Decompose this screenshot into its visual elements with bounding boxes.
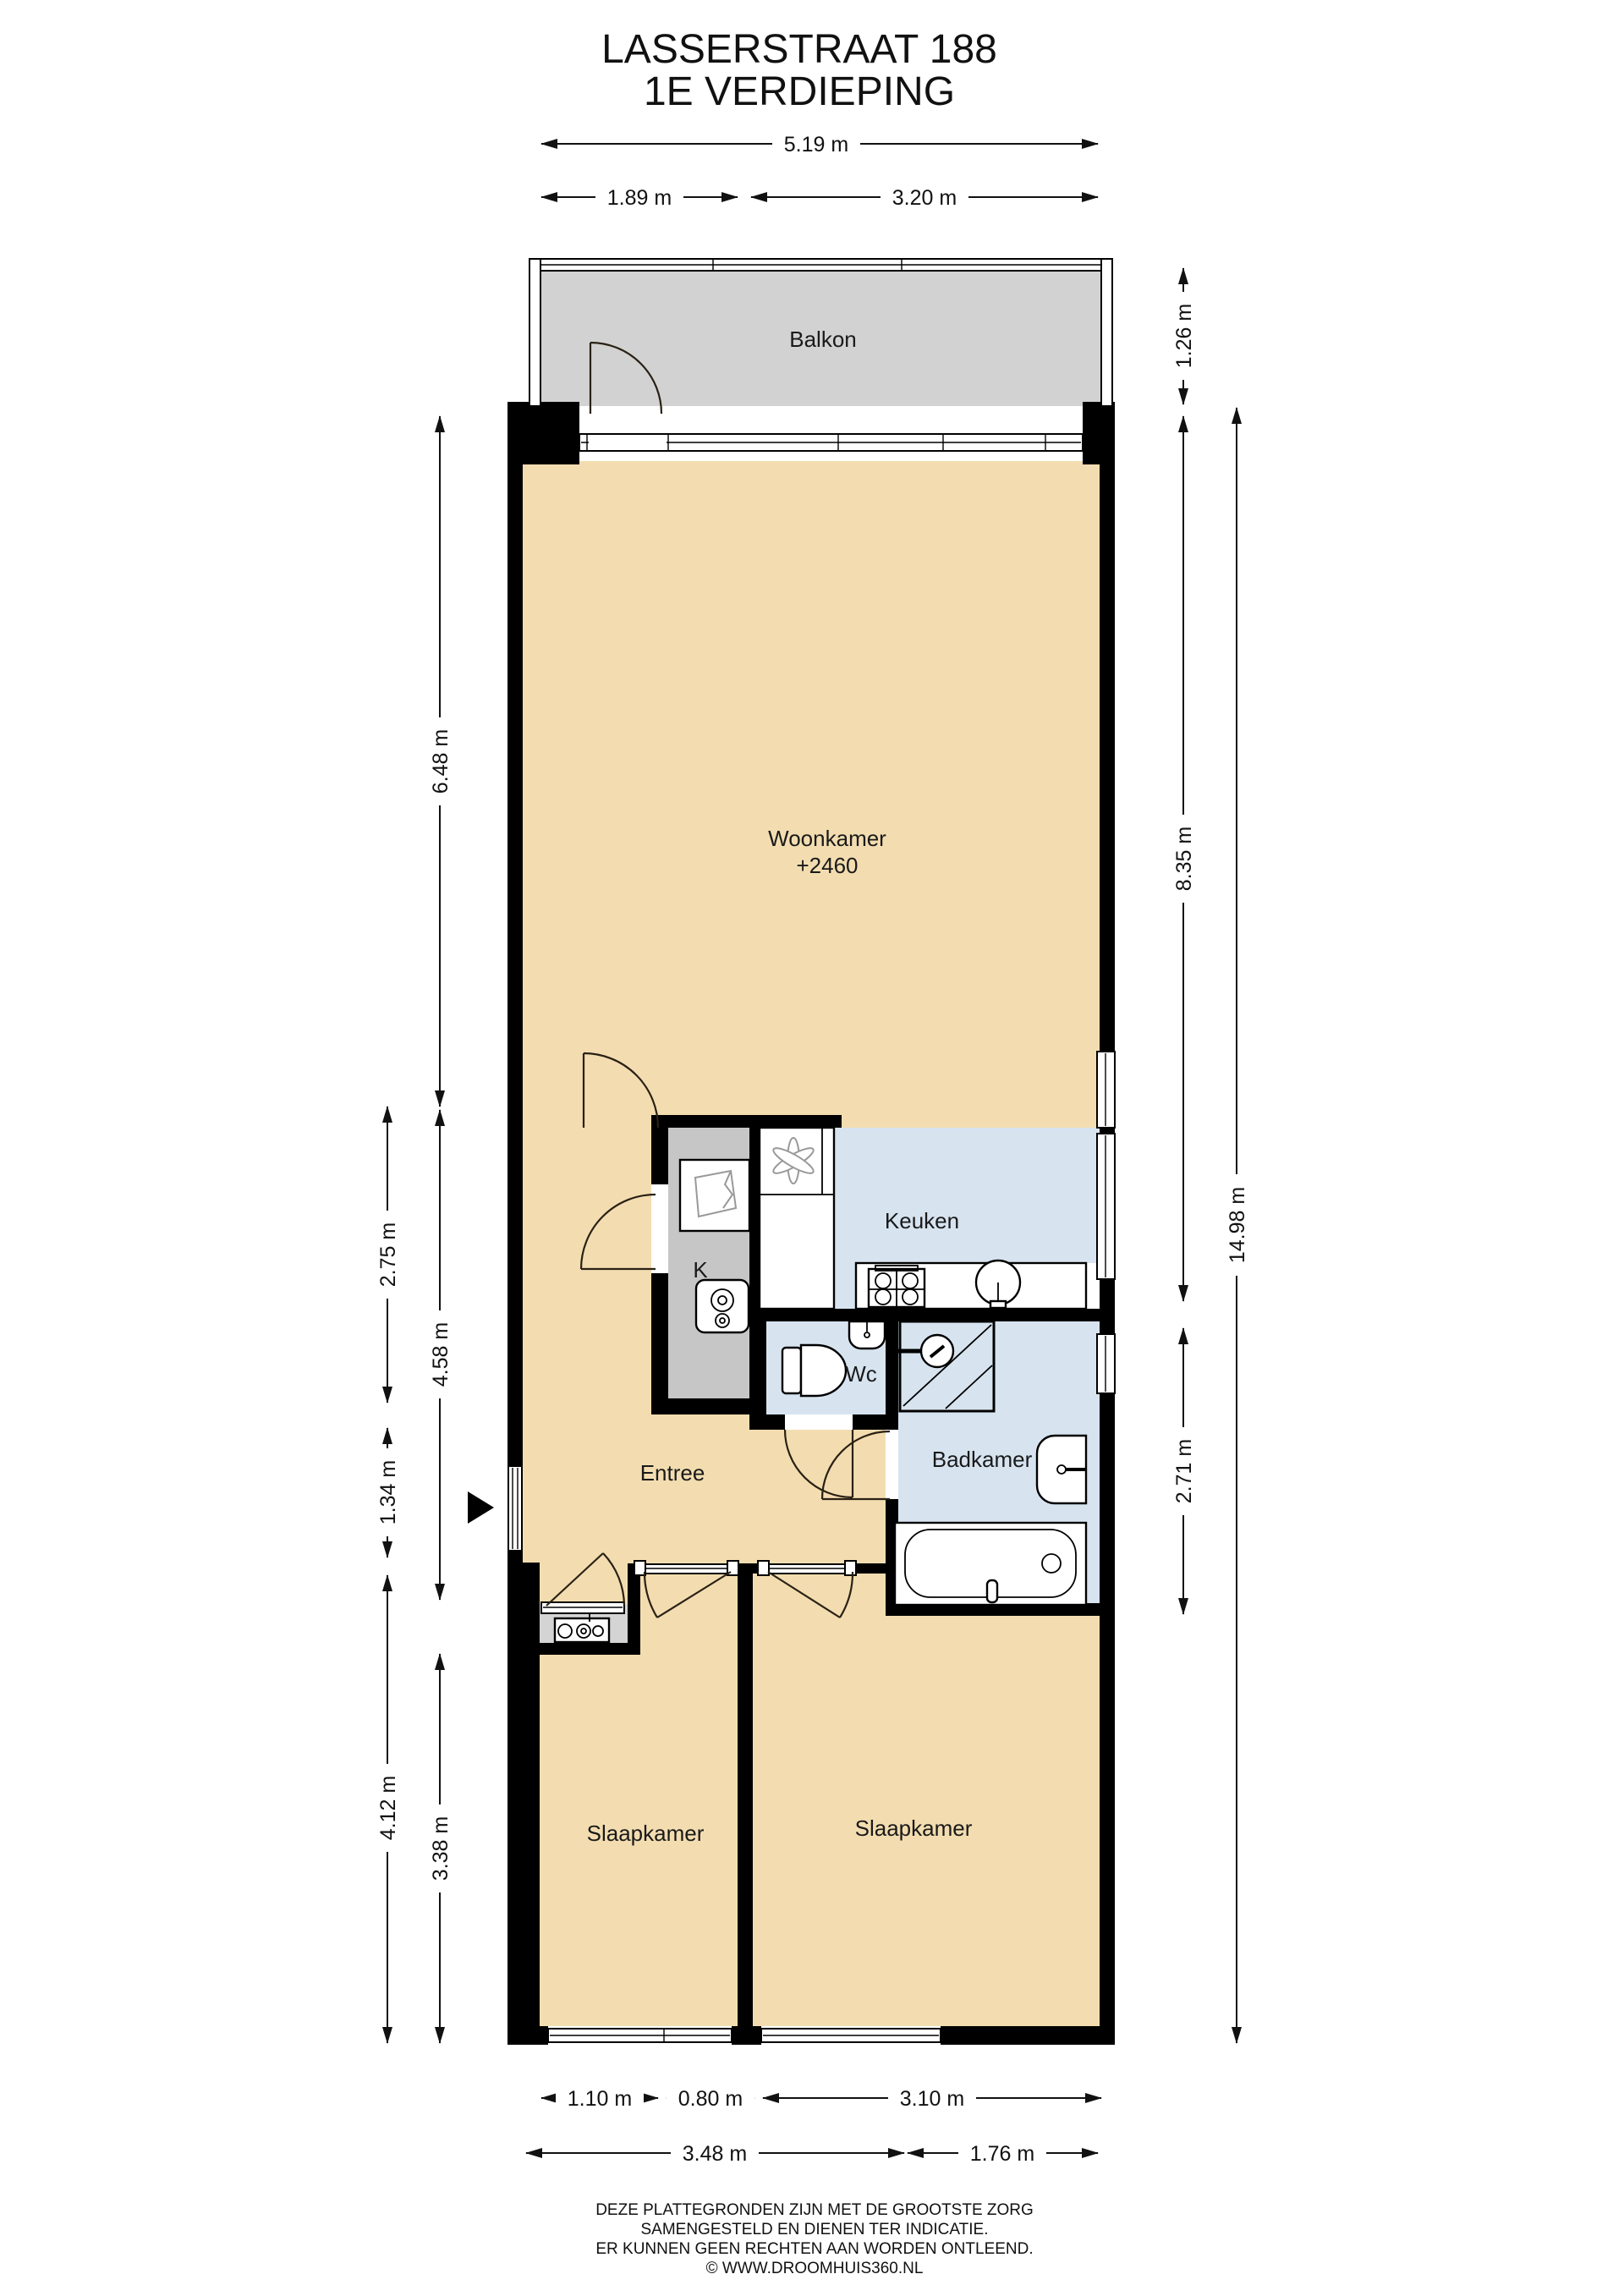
dim-right-total: 14.98 m (1226, 1187, 1249, 1263)
room-label-keuken: Keuken (885, 1208, 959, 1233)
balcony-door-opening (589, 436, 667, 449)
dim-left-woonkamer: 6.48 m (429, 729, 453, 794)
bathtub-icon (895, 1523, 1086, 1605)
bedroom-left-floor (640, 1574, 738, 2026)
dim-left-bedroom-outer: 4.12 m (376, 1776, 400, 1840)
wardrobe-icon (680, 1160, 749, 1231)
meter-unit-icon (555, 1613, 609, 1642)
hall-floor (651, 1414, 749, 1563)
livingroom-floor (523, 461, 1100, 1128)
dim-bottom-total-right: 1.76 m (970, 2142, 1034, 2166)
hall-floor (749, 1430, 886, 1563)
dim-left-hall-lower: 1.34 m (376, 1460, 400, 1524)
dim-bottom-win1: 1.10 m (568, 2087, 632, 2111)
toilet-sink-icon (849, 1321, 885, 1348)
dim-top-left: 1.89 m (607, 186, 672, 210)
room-label-slaapkamer-left: Slaapkamer (587, 1821, 705, 1846)
room-label-woonkamer-ceiling: +2460 (796, 853, 858, 878)
plan-title-line1: LASSERSTRAAT 188 (601, 27, 997, 72)
room-label-kast: K (693, 1257, 708, 1283)
room-label-badkamer: Badkamer (932, 1447, 1033, 1472)
hall-floor (523, 1128, 651, 1563)
room-label-woonkamer: Woonkamer (768, 826, 886, 851)
room-label-slaapkamer-right: Slaapkamer (855, 1815, 973, 1841)
dim-right-upper: 8.35 m (1172, 827, 1196, 891)
footer-line2: SAMENGESTELD EN DIENEN TER INDICATIE. (640, 2221, 988, 2238)
front-door-frame (508, 1466, 522, 1551)
boiler-icon (696, 1280, 749, 1332)
room-label-wc: Wc (845, 1361, 877, 1387)
dim-bottom-total-left: 3.48 m (683, 2142, 747, 2166)
dim-top-total: 5.19 m (784, 133, 848, 157)
footer-line3: ER KUNNEN GEEN RECHTEN AAN WORDEN ONTLEE… (595, 2240, 1033, 2258)
stove-icon (869, 1266, 924, 1307)
dim-bottom-win2: 0.80 m (678, 2087, 743, 2111)
floorplan-drawing: 5.19 m 1.89 m 3.20 m 1.26 m 8.35 m 2.71 … (0, 0, 1624, 2296)
plan-title-line2: 1E VERDIEPING (644, 69, 955, 114)
dim-left-hall-upper: 2.75 m (376, 1222, 400, 1287)
bedroom-right-floor (753, 1574, 886, 2026)
bathroom-sink-icon (1037, 1436, 1086, 1503)
dim-left-bedroom-inner: 3.38 m (429, 1816, 453, 1881)
floorplan-page: 5.19 m 1.89 m 3.20 m 1.26 m 8.35 m 2.71 … (0, 0, 1624, 2296)
footer-line1: DEZE PLATTEGRONDEN ZIJN MET DE GROOTSTE … (595, 2201, 1034, 2219)
footer-line4: © WWW.DROOMHUIS360.NL (706, 2260, 924, 2277)
room-label-balkon: Balkon (789, 327, 857, 352)
dim-bottom-win3: 3.10 m (900, 2087, 964, 2111)
dim-balkon-depth: 1.26 m (1172, 304, 1196, 368)
dim-right-lower: 2.71 m (1172, 1439, 1196, 1503)
entrance-arrow-icon (468, 1491, 494, 1524)
toilet-icon (782, 1345, 846, 1396)
kitchen-floor (834, 1263, 856, 1309)
dim-left-mid: 4.58 m (429, 1322, 453, 1387)
dim-top-right: 3.20 m (892, 186, 957, 210)
kitchen-floor (834, 1128, 1100, 1263)
room-label-entree: Entree (640, 1460, 705, 1486)
